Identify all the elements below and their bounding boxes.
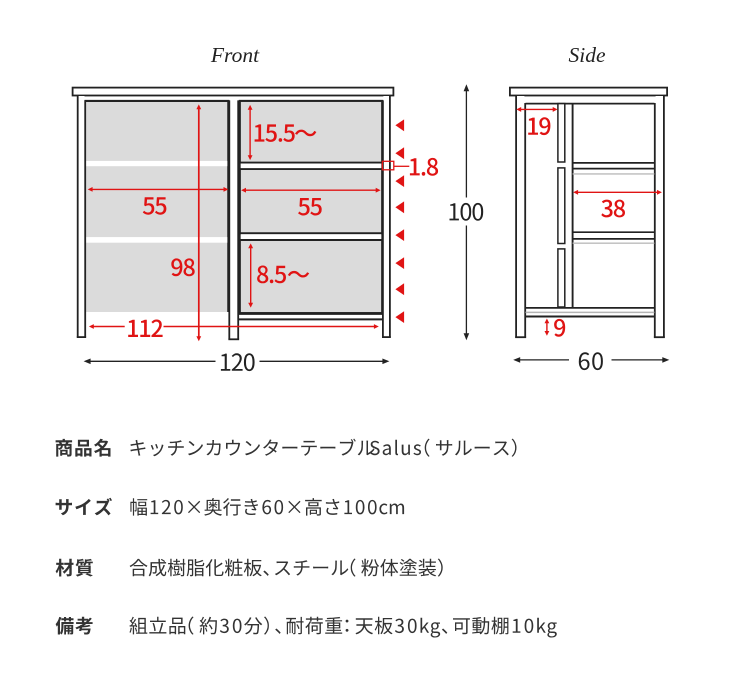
svg-text:Side: Side: [568, 43, 605, 67]
svg-text:Front: Front: [210, 43, 260, 67]
